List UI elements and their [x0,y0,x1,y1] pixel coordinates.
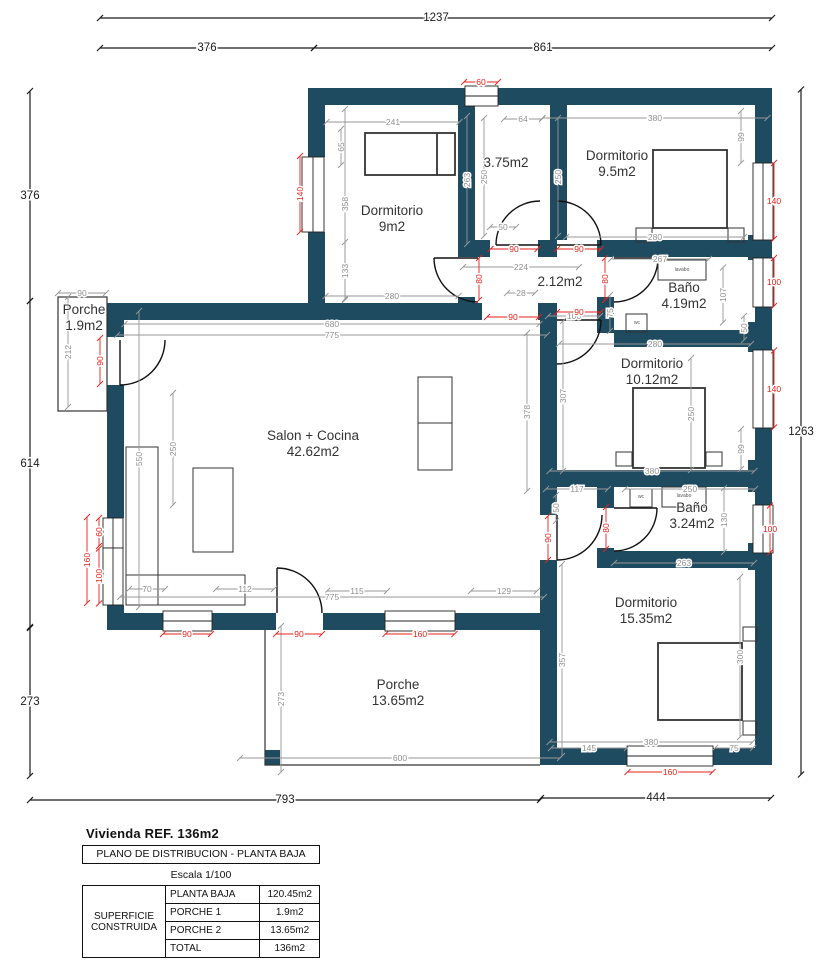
dimension-label: 75 [605,308,615,318]
dimension-label: 130 [719,513,729,527]
title-block: Vivienda REF. 136m2 PLANO DE DISTRIBUCIO… [82,826,320,958]
dimension-label: 80 [474,274,484,284]
room-label: Porche13.65m2 [372,677,425,708]
dimension-label: 380 [644,737,658,747]
dimension-label: 90 [574,307,584,317]
dimension-label: 380 [648,113,662,123]
row-label: TOTAL [166,940,260,958]
dimension-label: 1237 [423,12,449,24]
dimension-label: 444 [646,792,666,804]
window-salon-south-2 [385,611,455,631]
dimension-label: 273 [20,696,39,708]
plan-title: Vivienda REF. 136m2 [86,826,320,841]
dimension-label: 1263 [788,426,814,438]
dimension-label: 212 [63,345,73,359]
nightstand [706,452,722,466]
row-value: 13.65m2 [260,922,320,940]
row-value: 1.9m2 [260,904,320,922]
dimension-label: 263 [677,558,691,568]
room-label: Baño3.24m2 [669,500,714,531]
dimension-label: 90 [508,312,518,322]
dimension-label: 99 [736,132,746,142]
door-hall-dorm9 [434,258,478,302]
dimension-label: 263 [462,173,472,187]
window-salon-south-1 [163,611,212,631]
doors-layer [120,201,658,613]
dimension-label: 50 [498,222,508,232]
dimension-label: 600 [393,753,407,763]
dimension-label: 90 [95,356,105,366]
dimension-label: 140 [295,187,305,201]
dimension-label: 145 [582,743,596,753]
dimension-label: 80 [601,523,611,533]
dimension-label: 250 [686,407,696,421]
closet-dorm9 [365,133,455,175]
dimension-label: 90 [294,629,304,639]
dimension-label: 107 [718,288,728,302]
dimension-label: 100 [767,277,781,287]
fixture-label: wc [638,494,645,500]
room-label: Dormitorio10.12m2 [621,356,683,387]
dimension-label: 112 [238,584,252,594]
dimension-label: 90 [77,288,87,298]
porch-outlines [58,297,540,765]
dimension-label: 775 [325,592,339,602]
door-hall-bath1 [614,258,658,302]
dimension-label: 376 [20,190,39,202]
door-porch-salon [120,340,165,385]
dimension-label: 300 [735,650,745,664]
floor-plan-page: 1237376861376614273126379344490212241653… [0,0,824,965]
surface-table: SUPERFICIE CONSTRUIDA PLANTA BAJA 120.45… [82,885,320,958]
dimension-label: 273 [276,692,286,706]
dimension-label: 280 [648,339,662,349]
dimension-label: 224 [514,262,528,272]
kitchen-island [193,468,233,552]
dimension-label: 50 [551,503,561,513]
dimension-label: 90 [574,244,584,254]
dimension-label: 160 [82,553,92,567]
nightstand [616,452,632,466]
row-label: PORCHE 2 [166,922,260,940]
window-salon-west-1 [103,518,123,548]
porch-post [265,750,280,765]
fixture-label: lavabo [675,267,690,273]
floor-plan-svg: 1237376861376614273126379344490212241653… [0,0,824,824]
door-bath2 [614,508,657,551]
dimension-label: 376 [197,42,216,54]
dimension-label: 50 [739,323,749,333]
dimension-label: 160 [413,629,427,639]
fixture-label: lavabo [677,493,692,499]
room-label: Baño4.19m2 [661,280,706,311]
nightstand [743,721,757,735]
dimension-label: 280 [385,291,399,301]
dimension-label: 100 [94,569,104,583]
dimension-label: 140 [767,384,781,394]
surface-header: SUPERFICIE CONSTRUIDA [83,886,166,958]
dimension-label: 378 [522,405,532,419]
dimension-label: 250 [479,170,489,184]
window-south-bedroom [627,746,713,766]
furniture-layer [126,133,757,735]
dimension-label: 60 [476,77,486,87]
room-label: Porche1.9m2 [63,302,106,333]
dimension-label: 680 [325,319,339,329]
row-label: PLANTA BAJA [166,886,260,904]
window-left-bedroom [302,157,324,232]
dimension-label: 115 [350,586,364,596]
dimension-label: 358 [340,197,350,211]
dimension-label: 357 [557,653,567,667]
room-label: 2.12m2 [537,274,582,289]
plan-scale: Escala 1/100 [82,864,320,885]
row-value: 136m2 [260,940,320,958]
dimension-label: 280 [648,232,662,242]
dimension-label: 250 [553,170,563,184]
dimension-label: 75 [729,743,739,753]
dimension-label: 793 [275,794,294,806]
table-row: SUPERFICIE CONSTRUIDA PLANTA BAJA 120.45… [83,886,320,904]
bed-dorm15 [658,643,742,720]
dimension-label: 100 [763,524,777,534]
room-label: 3.75m2 [483,155,528,170]
door-salon-dorm15 [557,515,602,560]
windows-layer [103,86,773,766]
room-label: Salon + Cocina42.62m2 [267,428,359,459]
dimension-label: 90 [543,533,553,543]
dimension-label: 160 [663,767,677,777]
plan-subtitle: PLANO DE DISTRIBUCION - PLANTA BAJA [82,845,320,864]
dimension-label: 65 [336,142,346,152]
dimension-label: 267 [653,254,667,264]
dimension-label: 133 [340,264,350,278]
dimension-label: 70 [142,584,152,594]
dimension-label: 307 [558,389,568,403]
dimension-label: 117 [570,484,584,494]
bed-dorm95 [653,150,727,228]
bed-dorm10 [633,388,705,468]
dimension-label: 241 [386,117,400,127]
dimension-label: 129 [497,586,511,596]
dimension-label: 250 [168,442,178,456]
row-label: PORCHE 1 [166,904,260,922]
room-label: Dormitorio9.5m2 [586,148,648,179]
fixture-label: wc [634,320,641,326]
dimension-label: 775 [325,330,339,340]
room-label: Dormitorio9m2 [361,203,423,234]
dimension-label: 614 [20,458,40,470]
dimension-label: 99 [736,444,746,454]
dimension-label: 80 [600,274,610,284]
dimension-label: 64 [518,114,528,124]
door-hall-dorm10 [557,320,601,364]
dimension-label: 90 [182,629,192,639]
room-label: Dormitorio15.35m2 [615,595,677,626]
dimension-label: 28 [516,288,526,298]
dimension-label: 550 [134,452,144,466]
nightstand [743,627,757,641]
row-value: 120.45m2 [260,886,320,904]
dimension-label: 60 [94,527,104,537]
door-main-entry [277,568,322,613]
dimension-label: 140 [767,196,781,206]
kitchen-counter [126,447,158,605]
dimension-label: 90 [509,244,519,254]
window-top [465,86,498,106]
walls-layer [107,88,772,765]
dimension-label: 861 [533,42,552,54]
dimension-label: 380 [645,466,659,476]
